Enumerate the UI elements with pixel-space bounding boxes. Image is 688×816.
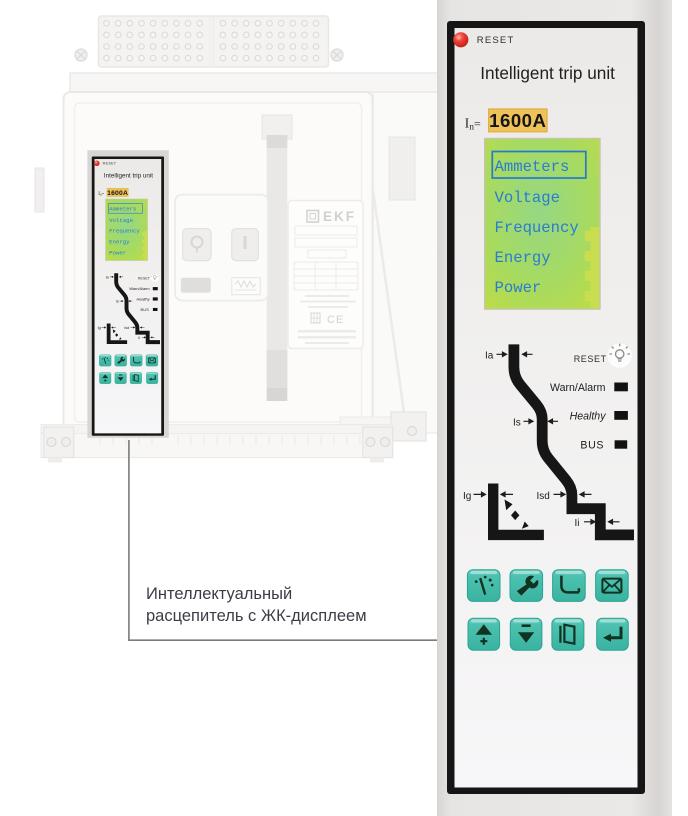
svg-text:расцепитель с ЖК-дисплеем: расцепитель с ЖК-дисплеем (146, 607, 367, 625)
svg-text:Интеллектуальный: Интеллектуальный (146, 585, 292, 603)
svg-text:EKF: EKF (323, 209, 356, 224)
svg-text:CE: CE (327, 314, 344, 326)
